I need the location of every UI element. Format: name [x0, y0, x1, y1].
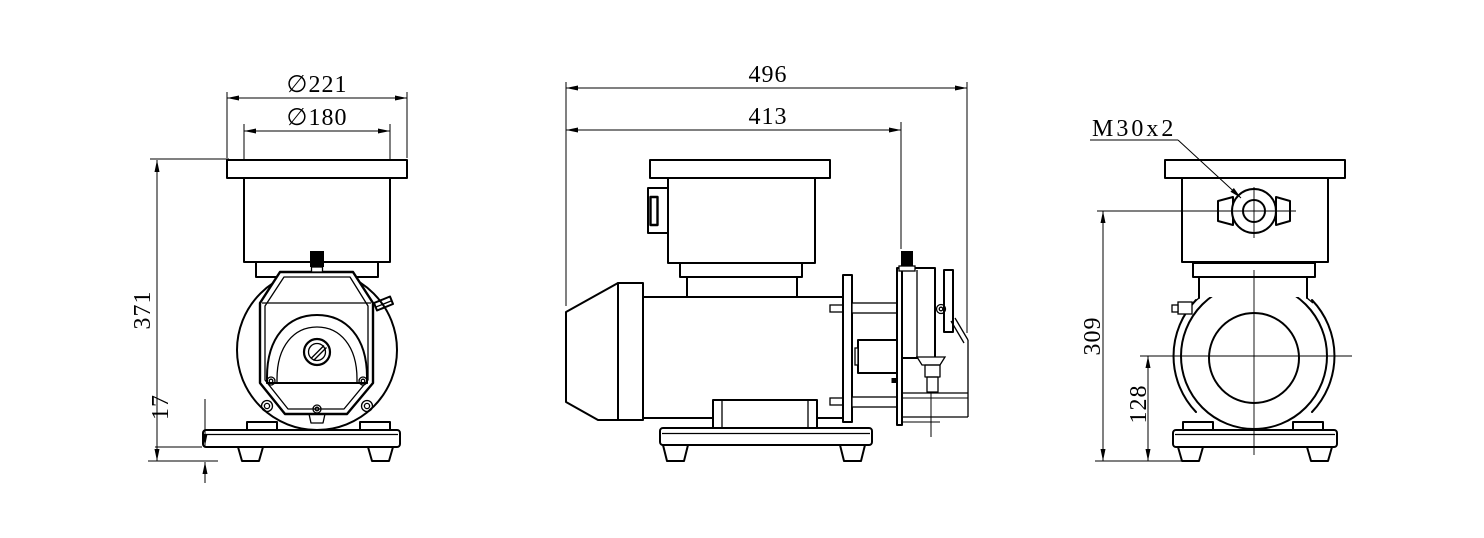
tank-shoulder	[687, 277, 797, 297]
clamp-knob	[310, 251, 324, 267]
foot-left	[663, 445, 688, 461]
gearbox-block	[858, 340, 898, 373]
foot-right	[840, 445, 865, 461]
cover-screw	[362, 401, 373, 412]
clamp-lower	[927, 377, 938, 392]
mount-pad-right	[1293, 422, 1323, 430]
gearbox-step	[855, 348, 858, 365]
dim-label-inlet-height: 309	[1080, 317, 1106, 356]
tank-flange-side	[650, 160, 830, 178]
dim-label-foot-height: 17	[148, 394, 174, 420]
clamp-knob-base-side	[899, 266, 915, 271]
mount-pad-left	[247, 422, 277, 430]
mount-pad-right	[360, 422, 390, 430]
dim-label-housing-diameter: ∅180	[287, 105, 348, 131]
bracket-chamfer	[1193, 298, 1199, 303]
tube-fitting-tip	[1172, 305, 1178, 312]
lever-screw-center	[939, 307, 943, 311]
clamp-shoe	[917, 357, 945, 365]
dim-label-inlet-thread: M30x2	[1092, 116, 1176, 142]
tank-body	[244, 178, 390, 262]
foot-left	[1178, 447, 1203, 461]
cover-screw-center	[264, 403, 269, 408]
tube-fitting-rear	[1178, 302, 1192, 314]
clamp-knob-base	[312, 267, 323, 272]
tank-neck-side	[680, 263, 802, 277]
dim-label-overall-length: 496	[749, 62, 788, 88]
mounting-base-side	[660, 428, 872, 445]
motor-cap-flange	[618, 283, 643, 420]
dim-label-flange-diameter: ∅221	[287, 72, 348, 98]
latch-slot	[651, 197, 658, 225]
support-rod-lower	[852, 397, 902, 407]
pump-three-view-drawing: ∅221 ∅180 371 17	[0, 0, 1484, 538]
foot-right	[1307, 447, 1332, 461]
cover-screw	[262, 401, 273, 412]
support-rod-upper	[852, 303, 902, 313]
mounting-base	[203, 430, 400, 447]
foot-right	[368, 447, 393, 461]
motor-end-cap	[566, 283, 618, 420]
pump-head-side-body	[902, 268, 935, 358]
rod-tab-lower	[830, 398, 843, 405]
dim-label-overall-height: 371	[130, 291, 156, 330]
mount-pad-left	[1183, 422, 1213, 430]
mounting-base-rear	[1173, 430, 1337, 447]
rear-view: M30x2 309 128	[1080, 116, 1352, 461]
sensor-dot	[892, 378, 897, 383]
mount-block	[713, 400, 817, 428]
dim-label-length-to-head: 413	[749, 104, 788, 130]
bottom-boss	[309, 414, 325, 423]
side-view: 496 413	[566, 62, 968, 461]
tank-flange	[227, 160, 407, 178]
head-panel-slant	[955, 318, 968, 340]
dim-label-shaft-height: 128	[1126, 385, 1152, 424]
cover-screw-center	[364, 403, 369, 408]
tank-flange-rear	[1165, 160, 1345, 178]
clamp-knob-side	[901, 251, 913, 266]
rod-tab-upper	[830, 305, 843, 312]
adapter-flange-plate	[843, 275, 852, 422]
bracket-mask	[1199, 277, 1307, 297]
technical-drawing: ∅221 ∅180 371 17	[0, 0, 1484, 538]
front-view: ∅221 ∅180 371 17	[130, 72, 407, 483]
clamp-block	[925, 365, 940, 377]
tank-body-side	[668, 178, 815, 263]
foot-left	[238, 447, 263, 461]
